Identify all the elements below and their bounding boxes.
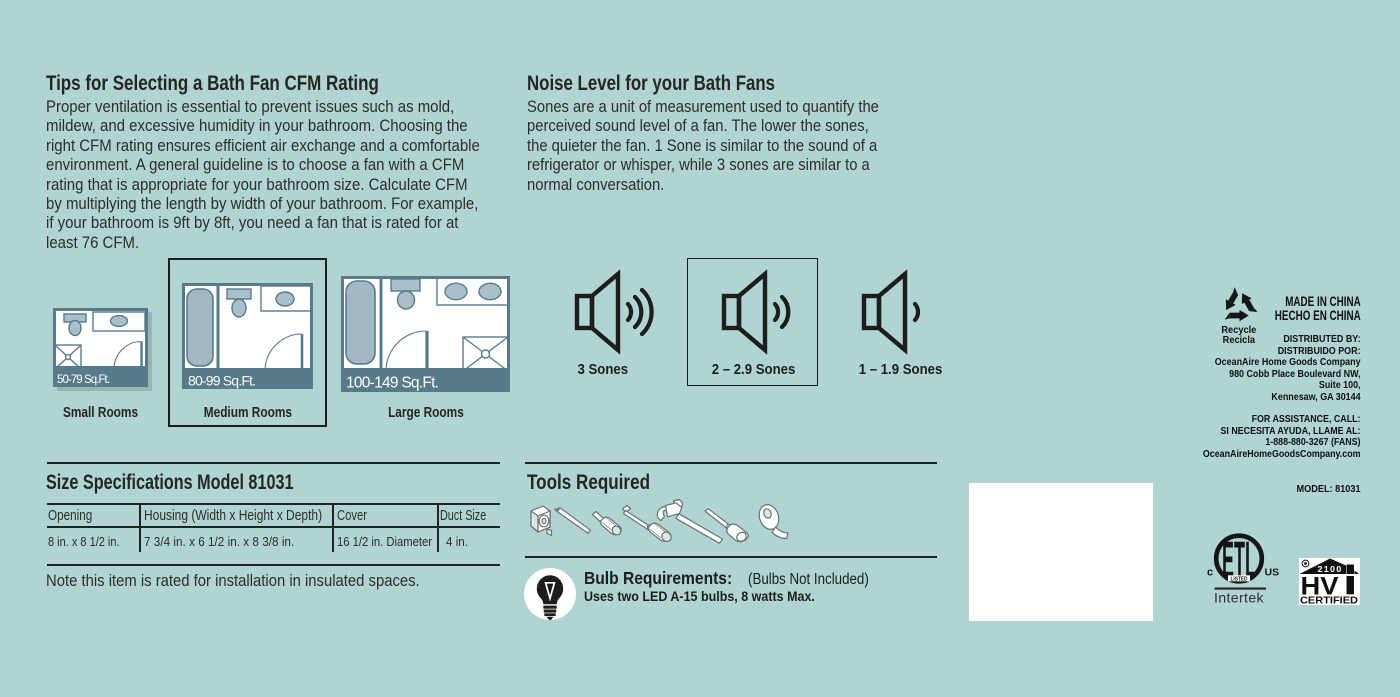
svg-text:LISTED: LISTED: [1231, 576, 1248, 582]
svg-text:50-79 Sq.Ft.: 50-79 Sq.Ft.: [57, 374, 110, 386]
svg-text:100-149 Sq.Ft.: 100-149 Sq.Ft.: [346, 375, 439, 392]
svg-text:Intertek: Intertek: [1214, 590, 1264, 606]
svg-text:CERTIFIED: CERTIFIED: [1300, 594, 1358, 605]
svg-text:c: c: [1207, 567, 1213, 579]
svg-text:US: US: [1265, 567, 1280, 579]
svg-text:80-99 Sq.Ft.: 80-99 Sq.Ft.: [188, 373, 256, 389]
